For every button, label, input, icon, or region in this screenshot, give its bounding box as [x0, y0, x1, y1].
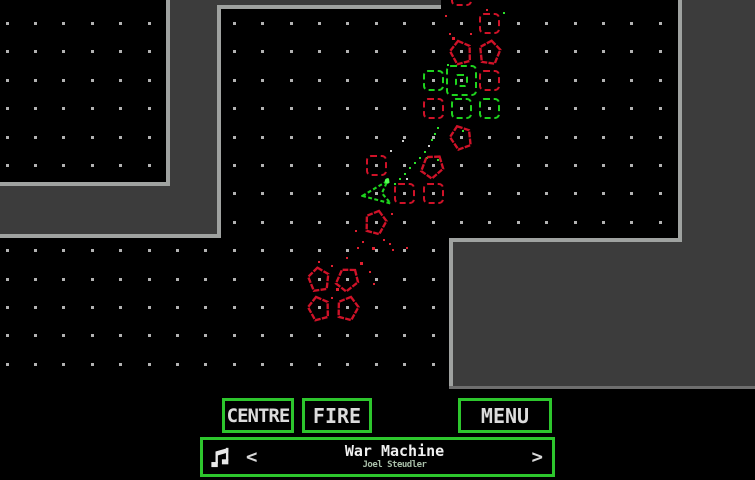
- grid-dot: [6, 306, 9, 309]
- grid-dot: [346, 107, 349, 110]
- grid-dot: [91, 363, 94, 366]
- friendly-marker[interactable]: [451, 98, 472, 119]
- grid-dot: [176, 249, 179, 252]
- particle: [331, 265, 333, 267]
- grid-dot: [432, 306, 435, 309]
- grid-dot: [346, 22, 349, 25]
- enemy-marker[interactable]: [479, 70, 500, 91]
- grid-dot: [91, 136, 94, 139]
- grid-dot: [659, 221, 662, 224]
- grid-dot: [488, 221, 491, 224]
- menu-button[interactable]: MENU: [458, 398, 552, 433]
- grid-dot: [91, 164, 94, 167]
- grid-dot: [261, 278, 264, 281]
- grid-dot: [545, 192, 548, 195]
- grid-dot: [261, 50, 264, 53]
- grid-dot: [403, 50, 406, 53]
- grid-dot: [34, 136, 37, 139]
- grid-dot: [6, 136, 9, 139]
- grid-dot: [261, 136, 264, 139]
- grid-dot: [62, 164, 65, 167]
- grid-dot: [659, 50, 662, 53]
- grid-dot: [346, 334, 349, 337]
- particle: [362, 241, 364, 243]
- grid-dot: [375, 50, 378, 53]
- grid-dot: [176, 363, 179, 366]
- grid-dot: [261, 221, 264, 224]
- marker-box: [366, 155, 387, 176]
- grid-dot: [318, 50, 321, 53]
- grid-dot: [659, 192, 662, 195]
- particle: [346, 257, 348, 259]
- grid-dot: [91, 22, 94, 25]
- particle: [399, 178, 401, 180]
- grid-dot: [176, 278, 179, 281]
- grid-dot: [290, 221, 293, 224]
- grid-dot: [290, 363, 293, 366]
- grid-dot: [574, 79, 577, 82]
- grid-dot: [6, 22, 9, 25]
- grid-dot: [432, 22, 435, 25]
- previous-track-button[interactable]: <: [242, 448, 261, 467]
- grid-dot: [290, 306, 293, 309]
- grid-dot: [119, 249, 122, 252]
- grid-dot: [62, 50, 65, 53]
- grid-dot: [602, 136, 605, 139]
- wall-edge: [678, 0, 682, 240]
- enemy-marker[interactable]: [451, 0, 472, 6]
- grid-dot: [62, 334, 65, 337]
- particle: [409, 167, 411, 169]
- grid-dot: [290, 249, 293, 252]
- grid-dot: [119, 79, 122, 82]
- grid-dot: [261, 306, 264, 309]
- grid-dot: [261, 363, 264, 366]
- marker-box: [451, 98, 472, 119]
- track-artist: Joel Steudler: [363, 460, 427, 471]
- grid-dot: [602, 22, 605, 25]
- grid-dot: [34, 79, 37, 82]
- enemy-ship[interactable]: [445, 120, 478, 153]
- grid-dot: [34, 249, 37, 252]
- particle: [373, 283, 375, 285]
- selection-box-inner: [455, 74, 468, 87]
- marker-box: [423, 98, 444, 119]
- centre-button[interactable]: CENTRE: [222, 398, 294, 433]
- particle: [486, 9, 488, 11]
- marker-box: [423, 70, 444, 91]
- marker-box: [423, 183, 444, 204]
- grid-dot: [318, 221, 321, 224]
- grid-dot: [233, 136, 236, 139]
- particle: [369, 271, 371, 273]
- fire-button[interactable]: FIRE: [302, 398, 372, 433]
- friendly-marker[interactable]: [479, 98, 500, 119]
- grid-dot: [630, 192, 633, 195]
- grid-dot: [318, 192, 321, 195]
- grid-dot: [148, 363, 151, 366]
- grid-dot: [119, 22, 122, 25]
- next-track-button[interactable]: >: [528, 448, 547, 467]
- grid-dot: [545, 221, 548, 224]
- particle: [331, 297, 333, 299]
- enemy-ship[interactable]: [330, 261, 366, 297]
- centre-button-label: CENTRE: [227, 405, 290, 427]
- grid-dot: [233, 107, 236, 110]
- grid-dot: [346, 363, 349, 366]
- particle: [390, 150, 392, 152]
- grid-dot: [233, 221, 236, 224]
- grid-dot: [204, 278, 207, 281]
- music-note-icon: [210, 444, 232, 470]
- grid-dot: [34, 363, 37, 366]
- grid-dot: [545, 50, 548, 53]
- wall-block: [453, 242, 755, 388]
- grid-dot: [432, 278, 435, 281]
- enemy-ship[interactable]: [360, 206, 392, 238]
- friendly-marker[interactable]: [423, 70, 444, 91]
- particle: [503, 12, 505, 14]
- grid-dot: [6, 249, 9, 252]
- wall-block: [682, 0, 755, 243]
- wall-edge: [0, 182, 166, 186]
- grid-dot: [62, 249, 65, 252]
- grid-dot: [602, 79, 605, 82]
- grid-dot: [6, 164, 9, 167]
- grid-dot: [488, 192, 491, 195]
- grid-dot: [119, 50, 122, 53]
- grid-dot: [34, 164, 37, 167]
- grid-dot: [261, 192, 264, 195]
- grid-dot: [62, 278, 65, 281]
- grid-dot: [659, 107, 662, 110]
- grid-dot: [403, 306, 406, 309]
- particle: [449, 33, 451, 35]
- enemy-ship[interactable]: [332, 292, 364, 324]
- grid-dot: [346, 249, 349, 252]
- grid-dot: [62, 22, 65, 25]
- grid-dot: [346, 79, 349, 82]
- grid-dot: [403, 136, 406, 139]
- grid-dot: [318, 22, 321, 25]
- particle: [406, 247, 408, 249]
- grid-dot: [432, 249, 435, 252]
- wall-edge: [166, 0, 170, 186]
- grid-dot: [290, 50, 293, 53]
- grid-dot: [148, 50, 151, 53]
- grid-dot: [432, 50, 435, 53]
- grid-dot: [346, 164, 349, 167]
- grid-dot: [91, 278, 94, 281]
- grid-dot: [375, 278, 378, 281]
- grid-dot: [233, 50, 236, 53]
- grid-dot: [403, 22, 406, 25]
- grid-dot: [403, 107, 406, 110]
- grid-dot: [91, 334, 94, 337]
- track-info: War Machine Joel Steudler: [261, 443, 527, 471]
- grid-dot: [233, 192, 236, 195]
- grid-dot: [630, 50, 633, 53]
- grid-dot: [659, 164, 662, 167]
- grid-dot: [119, 164, 122, 167]
- grid-dot: [630, 79, 633, 82]
- grid-dot: [545, 136, 548, 139]
- particle: [392, 249, 394, 251]
- enemy-marker[interactable]: [423, 183, 444, 204]
- grid-dot: [488, 164, 491, 167]
- grid-dot: [403, 164, 406, 167]
- grid-dot: [34, 278, 37, 281]
- enemy-marker[interactable]: [366, 155, 387, 176]
- grid-dot: [148, 249, 151, 252]
- particle: [414, 162, 416, 164]
- grid-dot: [290, 334, 293, 337]
- marker-box: [479, 70, 500, 91]
- grid-dot: [630, 22, 633, 25]
- grid-dot: [545, 107, 548, 110]
- marker-box: [479, 13, 500, 34]
- particle: [355, 230, 357, 232]
- enemy-ship[interactable]: [415, 147, 451, 183]
- particle: [437, 127, 439, 129]
- grid-dot: [204, 334, 207, 337]
- grid-dot: [261, 79, 264, 82]
- particle: [431, 139, 433, 141]
- grid-dot: [432, 334, 435, 337]
- grid-dot: [34, 306, 37, 309]
- particle: [470, 33, 472, 35]
- grid-dot: [375, 107, 378, 110]
- grid-dot: [517, 107, 520, 110]
- grid-dot: [403, 221, 406, 224]
- grid-dot: [261, 164, 264, 167]
- grid-dot: [460, 164, 463, 167]
- grid-dot: [6, 50, 9, 53]
- grid-dot: [517, 22, 520, 25]
- grid-dot: [62, 107, 65, 110]
- grid-dot: [290, 164, 293, 167]
- particle: [372, 247, 375, 250]
- grid-dot: [119, 136, 122, 139]
- wall-block: [0, 186, 217, 234]
- grid-dot: [119, 306, 122, 309]
- grid-dot: [261, 334, 264, 337]
- grid-dot: [233, 278, 236, 281]
- grid-dot: [432, 363, 435, 366]
- grid-dot: [403, 79, 406, 82]
- grid-dot: [460, 192, 463, 195]
- enemy-ship[interactable]: [475, 37, 504, 66]
- particle: [383, 239, 385, 241]
- grid-dot: [574, 136, 577, 139]
- grid-dot: [119, 107, 122, 110]
- grid-dot: [375, 306, 378, 309]
- grid-dot: [62, 79, 65, 82]
- grid-dot: [545, 79, 548, 82]
- fire-button-label: FIRE: [313, 404, 361, 428]
- grid-dot: [148, 107, 151, 110]
- grid-dot: [233, 363, 236, 366]
- grid-dot: [602, 50, 605, 53]
- grid-dot: [517, 164, 520, 167]
- grid-dot: [432, 221, 435, 224]
- grid-dot: [91, 50, 94, 53]
- grid-dot: [290, 136, 293, 139]
- grid-dot: [261, 107, 264, 110]
- grid-dot: [318, 136, 321, 139]
- enemy-marker[interactable]: [479, 13, 500, 34]
- grid-dot: [517, 221, 520, 224]
- wall-edge: [453, 238, 682, 242]
- grid-dot: [318, 164, 321, 167]
- particle: [318, 261, 320, 263]
- grid-dot: [403, 278, 406, 281]
- grid-dot: [233, 22, 236, 25]
- grid-dot: [34, 22, 37, 25]
- grid-dot: [318, 363, 321, 366]
- grid-dot: [204, 306, 207, 309]
- grid-dot: [574, 50, 577, 53]
- marker-box: [394, 183, 415, 204]
- particle: [360, 262, 363, 265]
- particle: [357, 247, 359, 249]
- grid-dot: [602, 192, 605, 195]
- track-title: War Machine: [345, 443, 444, 460]
- grid-dot: [62, 363, 65, 366]
- grid-dot: [148, 136, 151, 139]
- grid-dot: [346, 50, 349, 53]
- grid-dot: [346, 136, 349, 139]
- marker-box: [479, 98, 500, 119]
- grid-dot: [659, 136, 662, 139]
- wall-edge: [449, 386, 755, 389]
- menu-button-label: MENU: [481, 404, 529, 428]
- grid-dot: [6, 278, 9, 281]
- grid-dot: [176, 306, 179, 309]
- grid-dot: [119, 334, 122, 337]
- grid-dot: [659, 79, 662, 82]
- grid-dot: [602, 107, 605, 110]
- grid-dot: [233, 164, 236, 167]
- grid-dot: [630, 107, 633, 110]
- grid-dot: [630, 164, 633, 167]
- grid-dot: [574, 107, 577, 110]
- grid-dot: [62, 136, 65, 139]
- grid-dot: [34, 334, 37, 337]
- grid-dot: [261, 249, 264, 252]
- grid-dot: [318, 107, 321, 110]
- grid-dot: [574, 164, 577, 167]
- grid-dot: [290, 79, 293, 82]
- grid-dot: [630, 221, 633, 224]
- particle: [389, 243, 391, 245]
- grid-dot: [176, 334, 179, 337]
- grid-dot: [290, 192, 293, 195]
- grid-dot: [62, 306, 65, 309]
- enemy-marker[interactable]: [423, 98, 444, 119]
- grid-dot: [375, 363, 378, 366]
- grid-dot: [574, 192, 577, 195]
- grid-dot: [91, 306, 94, 309]
- grid-dot: [460, 22, 463, 25]
- grid-dot: [6, 79, 9, 82]
- game-screen: CENTRE FIRE MENU < War Machine Joel Steu…: [0, 0, 755, 480]
- friendly-marker-selected[interactable]: [446, 65, 477, 96]
- grid-dot: [659, 22, 662, 25]
- grid-dot: [346, 192, 349, 195]
- grid-dot: [318, 334, 321, 337]
- player-ship[interactable]: [359, 177, 393, 211]
- particle: [406, 178, 408, 180]
- grid-dot: [34, 50, 37, 53]
- enemy-ship[interactable]: [445, 36, 477, 68]
- grid-dot: [375, 334, 378, 337]
- grid-dot: [6, 107, 9, 110]
- grid-dot: [119, 363, 122, 366]
- grid-dot: [261, 22, 264, 25]
- grid-dot: [403, 249, 406, 252]
- grid-dot: [403, 334, 406, 337]
- grid-dot: [602, 164, 605, 167]
- grid-dot: [574, 22, 577, 25]
- grid-dot: [233, 306, 236, 309]
- music-player-bar: < War Machine Joel Steudler >: [200, 437, 555, 477]
- grid-dot: [148, 278, 151, 281]
- particle: [445, 15, 447, 17]
- grid-dot: [517, 50, 520, 53]
- grid-dot: [204, 363, 207, 366]
- grid-dot: [318, 79, 321, 82]
- grid-dot: [148, 79, 151, 82]
- grid-dot: [545, 22, 548, 25]
- particle: [402, 140, 404, 142]
- grid-dot: [545, 164, 548, 167]
- grid-dot: [148, 22, 151, 25]
- grid-dot: [233, 334, 236, 337]
- grid-dot: [460, 221, 463, 224]
- particle: [404, 173, 406, 175]
- wall-edge: [0, 234, 221, 238]
- enemy-marker[interactable]: [394, 183, 415, 204]
- particle: [434, 133, 436, 135]
- grid-dot: [34, 107, 37, 110]
- grid-dot: [148, 334, 151, 337]
- grid-dot: [290, 278, 293, 281]
- wall-edge: [449, 238, 453, 388]
- grid-dot: [375, 136, 378, 139]
- grid-dot: [148, 306, 151, 309]
- wall-edge: [217, 5, 221, 234]
- grid-dot: [6, 334, 9, 337]
- grid-dot: [375, 79, 378, 82]
- grid-dot: [318, 249, 321, 252]
- grid-dot: [375, 249, 378, 252]
- grid-dot: [346, 221, 349, 224]
- grid-dot: [488, 136, 491, 139]
- grid-dot: [233, 79, 236, 82]
- grid-dot: [6, 363, 9, 366]
- grid-dot: [290, 22, 293, 25]
- grid-dot: [375, 22, 378, 25]
- grid-dot: [602, 221, 605, 224]
- grid-dot: [148, 164, 151, 167]
- grid-dot: [91, 79, 94, 82]
- grid-dot: [233, 249, 236, 252]
- grid-dot: [204, 249, 207, 252]
- grid-dot: [91, 107, 94, 110]
- wall-edge: [221, 5, 441, 9]
- grid-dot: [290, 107, 293, 110]
